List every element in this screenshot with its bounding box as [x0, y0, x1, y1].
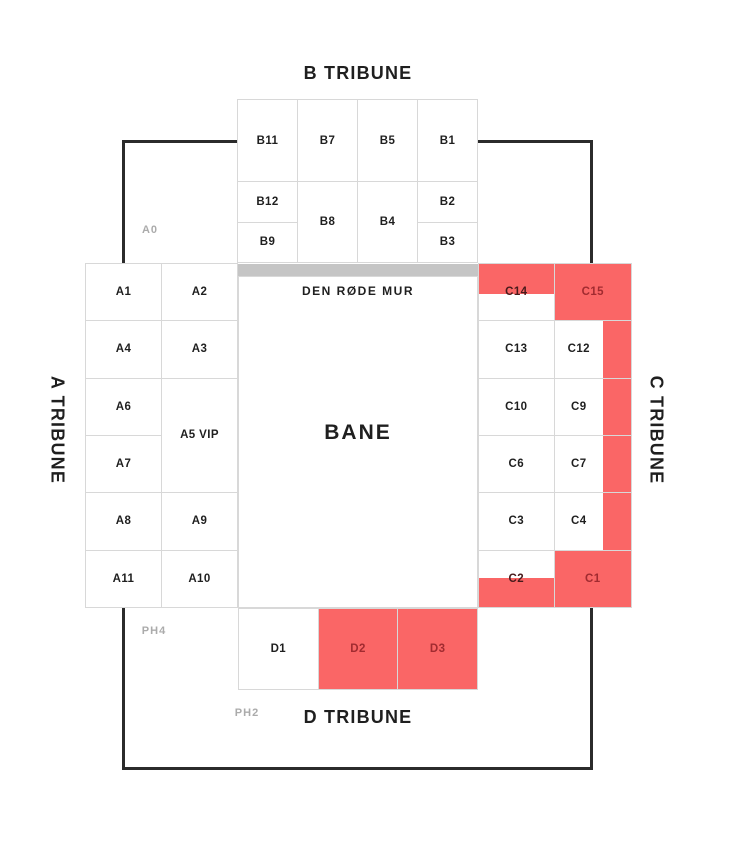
section-label-A6: A6	[116, 401, 132, 413]
section-label-D1: D1	[271, 643, 287, 655]
section-label-A5: A5 VIP	[180, 429, 219, 441]
c-tribune-title: C TRIBUNE	[646, 376, 667, 485]
section-label-A11: A11	[113, 573, 135, 585]
section-label-C14: C14	[505, 286, 527, 298]
section-label-A2: A2	[192, 286, 208, 298]
section-B2[interactable]: B2	[418, 182, 477, 221]
section-B8[interactable]: B8	[298, 182, 357, 262]
section-C10[interactable]: C10	[479, 379, 554, 435]
section-D1[interactable]: D1	[239, 609, 318, 689]
section-label-C9: C9	[571, 401, 587, 413]
a-tribune-title: A TRIBUNE	[47, 376, 68, 484]
section-A7[interactable]: A7	[86, 436, 161, 492]
b-tribune-title: B TRIBUNE	[238, 63, 478, 84]
section-A11[interactable]: A11	[86, 551, 161, 607]
section-label-C7: C7	[571, 458, 587, 470]
section-C2[interactable]: C2	[479, 551, 554, 607]
section-B9[interactable]: B9	[238, 223, 297, 262]
section-C3[interactable]: C3	[479, 493, 554, 549]
section-D3[interactable]: D3	[398, 609, 477, 689]
section-C7[interactable]: C7	[555, 436, 631, 492]
section-label-B7: B7	[320, 135, 336, 147]
section-label-D3: D3	[430, 643, 446, 655]
section-label-C15: C15	[582, 286, 604, 298]
section-D2[interactable]: D2	[319, 609, 398, 689]
zone-label-a0: A0	[142, 224, 158, 236]
section-B5[interactable]: B5	[358, 100, 417, 181]
section-label-C4: C4	[571, 515, 587, 527]
section-A10[interactable]: A10	[162, 551, 237, 607]
section-label-B1: B1	[440, 135, 456, 147]
section-C13[interactable]: C13	[479, 321, 554, 377]
section-C9[interactable]: C9	[555, 379, 631, 435]
section-A1[interactable]: A1	[86, 264, 161, 320]
section-label-A10: A10	[188, 573, 210, 585]
section-A4[interactable]: A4	[86, 321, 161, 377]
section-label-A3: A3	[192, 343, 208, 355]
section-C14[interactable]: C14	[479, 264, 554, 320]
section-label-C13: C13	[505, 343, 527, 355]
section-A6[interactable]: A6	[86, 379, 161, 435]
section-label-B2: B2	[440, 196, 456, 208]
zone-label-ph2: PH2	[235, 707, 259, 719]
section-B4[interactable]: B4	[358, 182, 417, 262]
section-label-A9: A9	[192, 515, 208, 527]
section-label-C10: C10	[505, 401, 527, 413]
section-C12[interactable]: C12	[555, 321, 631, 377]
section-label-C12: C12	[568, 343, 590, 355]
b-tribune-block: B11B7B5B1B12B8B4B2B9B3	[237, 99, 478, 263]
section-label-C2: C2	[509, 573, 525, 585]
section-label-A1: A1	[116, 286, 132, 298]
c-tribune-block: C14C15C13C12C10C9C6C7C3C4C2C1	[478, 263, 632, 608]
a-tribune-block: A1A2A4A3A6A5 VIPA7A8A9A11A10	[85, 263, 238, 608]
section-label-B11: B11	[257, 135, 279, 147]
section-label-A8: A8	[116, 515, 132, 527]
section-B12[interactable]: B12	[238, 182, 297, 221]
section-label-B5: B5	[380, 135, 396, 147]
section-B1[interactable]: B1	[418, 100, 477, 181]
section-C1[interactable]: C1	[555, 551, 631, 607]
section-label-B9: B9	[260, 236, 276, 248]
section-label-C6: C6	[509, 458, 525, 470]
pitch-label: BANE	[238, 421, 478, 445]
stadium-seating-map: B TRIBUNE A TRIBUNE C TRIBUNE D TRIBUNE …	[0, 0, 740, 846]
section-C4[interactable]: C4	[555, 493, 631, 549]
section-label-D2: D2	[350, 643, 366, 655]
red-wall-bar	[238, 264, 478, 276]
section-A3[interactable]: A3	[162, 321, 237, 377]
section-B3[interactable]: B3	[418, 223, 477, 262]
section-label-B8: B8	[320, 216, 336, 228]
section-label-B4: B4	[380, 216, 396, 228]
section-A9[interactable]: A9	[162, 493, 237, 549]
d-tribune-block: D1D2D3	[238, 608, 478, 690]
section-A2[interactable]: A2	[162, 264, 237, 320]
section-B7[interactable]: B7	[298, 100, 357, 181]
red-wall-label: DEN RØDE MUR	[238, 284, 478, 298]
section-label-C3: C3	[509, 515, 525, 527]
section-label-C1: C1	[585, 573, 601, 585]
zone-label-ph4: PH4	[142, 625, 166, 637]
section-B11[interactable]: B11	[238, 100, 297, 181]
section-A8[interactable]: A8	[86, 493, 161, 549]
section-label-A4: A4	[116, 343, 132, 355]
d-tribune-title: D TRIBUNE	[238, 707, 478, 728]
section-label-A7: A7	[116, 458, 132, 470]
section-label-B3: B3	[440, 236, 456, 248]
section-C6[interactable]: C6	[479, 436, 554, 492]
section-C15[interactable]: C15	[555, 264, 631, 320]
section-label-B12: B12	[256, 196, 278, 208]
section-A5[interactable]: A5 VIP	[162, 379, 237, 493]
